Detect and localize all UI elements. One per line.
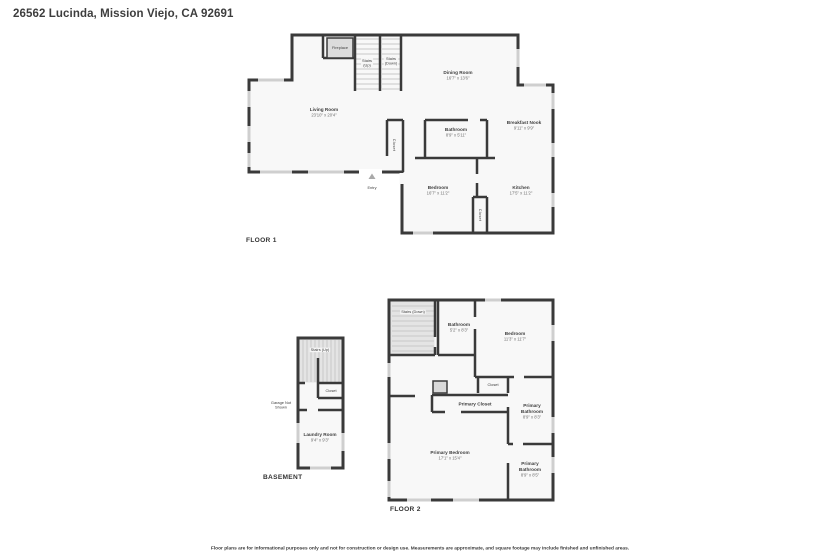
room-label-bathroom-f2: Bathroom 5'2" x 8'3"	[448, 321, 470, 332]
basement-plan	[255, 333, 350, 483]
closet-kitchen-label: Closet	[478, 209, 483, 222]
room-label-primary-bathroom-a: Primary Bathroom 8'9" x 8'3"	[521, 402, 544, 419]
basement-closet-label: Closet	[325, 389, 336, 394]
floor2-section-label: FLOOR 2	[390, 505, 421, 513]
closet-hall-label: Closet	[392, 139, 397, 152]
room-label-bedroom-f2: Bedroom 11'3" x 11'7"	[504, 330, 526, 341]
garage-note-line2: Shown	[271, 405, 291, 410]
room-name: Primary Bathroom	[521, 402, 544, 414]
stairs-down-label: Stairs (Down)	[384, 56, 399, 65]
garage-note: Garage Not Shown	[271, 400, 291, 409]
floor1-section-label: FLOOR 1	[246, 236, 277, 244]
page-title: 26562 Lucinda, Mission Viejo, CA 92691	[13, 8, 233, 20]
floor2-closet-label: Closet	[487, 383, 498, 388]
floorplan-page: 26562 Lucinda, Mission Viejo, CA 92691 L…	[0, 0, 839, 560]
room-dims: 16'7" x 13'6"	[443, 76, 472, 81]
floor2-chase-box	[433, 381, 447, 393]
room-dims: 8'9" x 5'11"	[445, 133, 467, 138]
room-dims: 17'5" x 11'2"	[510, 191, 533, 196]
floor1-plan	[240, 31, 560, 237]
floor2-stairs-label: Stairs (Down)	[400, 310, 426, 315]
room-name: Primary Closet	[458, 401, 491, 407]
room-dims: 9'11" x 9'9"	[507, 126, 541, 131]
fireplace-label: Fireplace	[332, 46, 348, 51]
basement-section-label: BASEMENT	[263, 473, 302, 481]
room-name: Primary Bathroom	[519, 460, 542, 472]
room-label-kitchen: Kitchen 17'5" x 11'2"	[510, 184, 533, 195]
room-label-primary-bathroom-b: Primary Bathroom 8'9" x 8'5"	[519, 460, 542, 477]
room-label-bathroom-f1: Bathroom 8'9" x 5'11"	[445, 126, 467, 137]
stairs-down-line2: (Down)	[385, 61, 398, 66]
footer-disclaimer: Floor plans are for informational purpos…	[211, 545, 629, 551]
basement-stairs-label: Stairs (Up)	[310, 348, 331, 353]
entry-label: Entry	[367, 186, 376, 191]
bedroom-door-opening	[400, 173, 406, 184]
room-label-breakfast-nook: Breakfast Nook 9'11" x 9'9"	[507, 119, 541, 130]
room-dims: 8'9" x 8'3"	[521, 415, 544, 420]
room-dims: 11'3" x 11'7"	[504, 337, 526, 342]
room-dims: 23'10" x 20'4"	[310, 113, 338, 118]
stairs-up-line2: (Up)	[362, 63, 372, 68]
room-label-living-room: Living Room 23'10" x 20'4"	[310, 106, 338, 117]
room-label-laundry-room: Laundry Room 9'4" x 9'3"	[303, 431, 336, 442]
room-label-bedroom-f1: Bedroom 16'7" x 11'2"	[427, 184, 450, 195]
stairs-up-label: Stairs (Up)	[361, 58, 373, 67]
entry-opening	[359, 169, 382, 175]
room-dims: 9'4" x 9'3"	[303, 438, 336, 443]
room-label-dining-room: Dining Room 16'7" x 13'6"	[443, 69, 472, 80]
room-dims: 16'7" x 11'2"	[427, 191, 450, 196]
room-dims: 17'1" x 15'4"	[430, 456, 469, 461]
room-label-primary-bedroom: Primary Bedroom 17'1" x 15'4"	[430, 449, 469, 460]
room-dims: 5'2" x 8'3"	[448, 328, 470, 333]
room-dims: 8'9" x 8'5"	[519, 473, 542, 478]
primary-closet-label: Primary Closet	[458, 401, 491, 407]
